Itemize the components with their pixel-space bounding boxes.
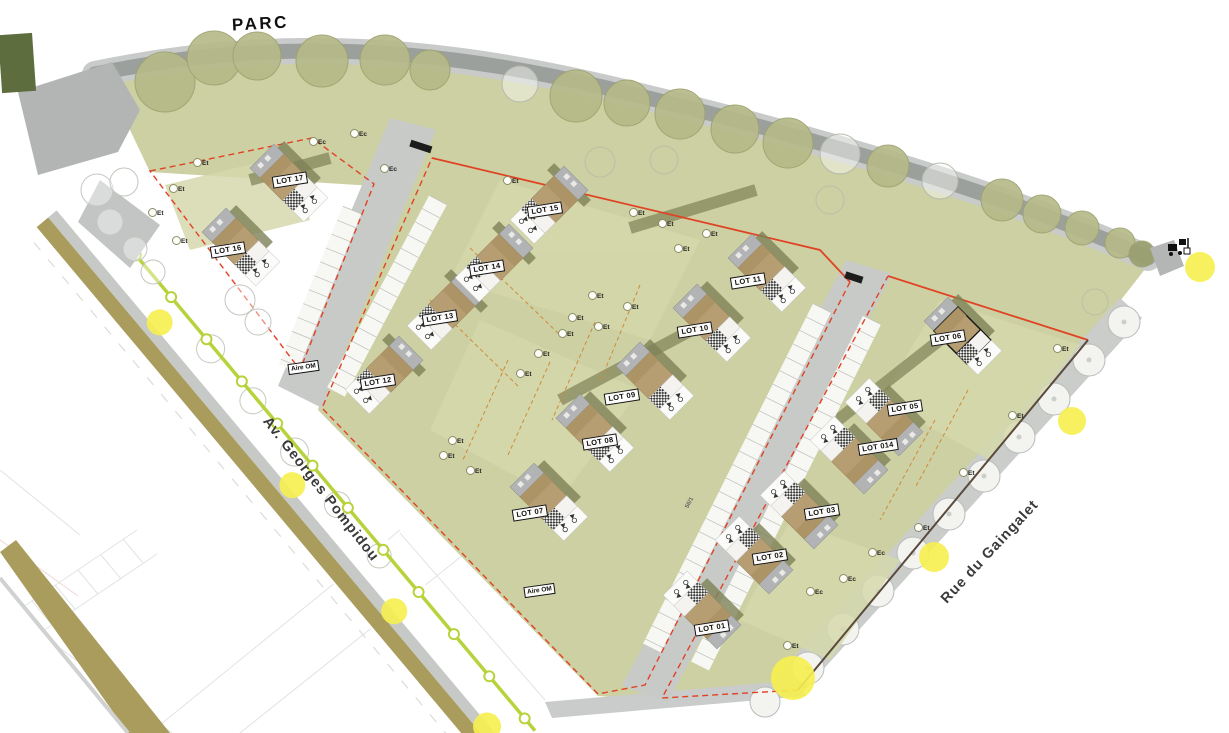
tree-marker-et: Et xyxy=(534,349,543,358)
lot-label-lot-07: LOT 07 xyxy=(512,504,549,521)
lot-label-lot-13: LOT 13 xyxy=(422,309,459,326)
site-plan: PARC LOT 01LOT 02LOT 03LOT 014LOT 05LOT … xyxy=(0,0,1229,733)
tree-marker-et: Et xyxy=(658,219,667,228)
tree-marker-et: Et xyxy=(702,229,711,238)
lot-label-lot-11: LOT 11 xyxy=(730,272,766,289)
lot-label-lot-03: LOT 03 xyxy=(804,503,841,520)
tree-marker-et: Et xyxy=(558,329,567,338)
tree-marker-ec: Ec xyxy=(380,164,389,173)
tree-marker-et: Et xyxy=(516,369,525,378)
lot-label-lot-17: LOT 17 xyxy=(272,171,309,188)
lot-label-lot-08: LOT 08 xyxy=(582,433,619,450)
tree-marker-et: Et xyxy=(594,322,603,331)
tree-marker-et: Et xyxy=(629,208,638,217)
lot-label-lot-05: LOT 05 xyxy=(887,399,924,416)
lot-label-lot-01: LOT 01 xyxy=(694,619,731,636)
lot-label-lot-14: LOT 14 xyxy=(469,259,506,276)
aire-om-label: Aire OM xyxy=(523,583,555,598)
tree-marker-ec: Ec xyxy=(806,587,815,596)
tree-marker-et: Et xyxy=(148,208,157,217)
aire-om-label: Aire OM xyxy=(287,360,319,375)
parc-label: PARC xyxy=(232,13,290,36)
street-name-gaingalet: Rue du Gaingalet xyxy=(938,497,1042,607)
tree-marker-et: Et xyxy=(914,523,923,532)
lot-label-lot-16: LOT 16 xyxy=(210,241,247,258)
lot-label-lot-10: LOT 10 xyxy=(677,321,714,338)
tree-marker-et: Et xyxy=(439,451,448,460)
tree-marker-ec: Ec xyxy=(309,137,318,146)
tree-marker-et: Et xyxy=(959,468,968,477)
tree-marker-et: Et xyxy=(466,466,475,475)
tree-marker-et: Et xyxy=(172,236,181,245)
tree-marker-et: Et xyxy=(783,641,792,650)
lot-label-lot-014: LOT 014 xyxy=(857,438,898,456)
lot-label-lot-06: LOT 06 xyxy=(930,329,967,346)
lot-label-lot-02: LOT 02 xyxy=(752,548,789,565)
tree-marker-et: Et xyxy=(588,291,597,300)
labels-overlay: PARC LOT 01LOT 02LOT 03LOT 014LOT 05LOT … xyxy=(0,0,1229,733)
tree-marker-et: Et xyxy=(169,184,178,193)
tree-marker-et: Et xyxy=(193,158,202,167)
tree-marker-et: Et xyxy=(448,436,457,445)
tree-marker-ec: Ec xyxy=(839,574,848,583)
lot-label-lot-09: LOT 09 xyxy=(604,388,641,405)
tree-marker-et: Et xyxy=(1008,411,1017,420)
street-name-pompidou: Av. Georges Pompidou xyxy=(259,414,382,565)
lot-label-lot-15: LOT 15 xyxy=(527,201,564,218)
tree-marker-ec: Ec xyxy=(350,129,359,138)
tree-marker-et: Et xyxy=(1053,344,1062,353)
tree-marker-et: Et xyxy=(623,302,632,311)
road-ref-label: 56/1 xyxy=(684,496,695,509)
lot-label-lot-12: LOT 12 xyxy=(360,373,397,390)
tree-marker-ec: Ec xyxy=(868,548,877,557)
tree-marker-et: Et xyxy=(503,176,512,185)
tree-marker-et: Et xyxy=(674,244,683,253)
tree-marker-et: Et xyxy=(568,313,577,322)
